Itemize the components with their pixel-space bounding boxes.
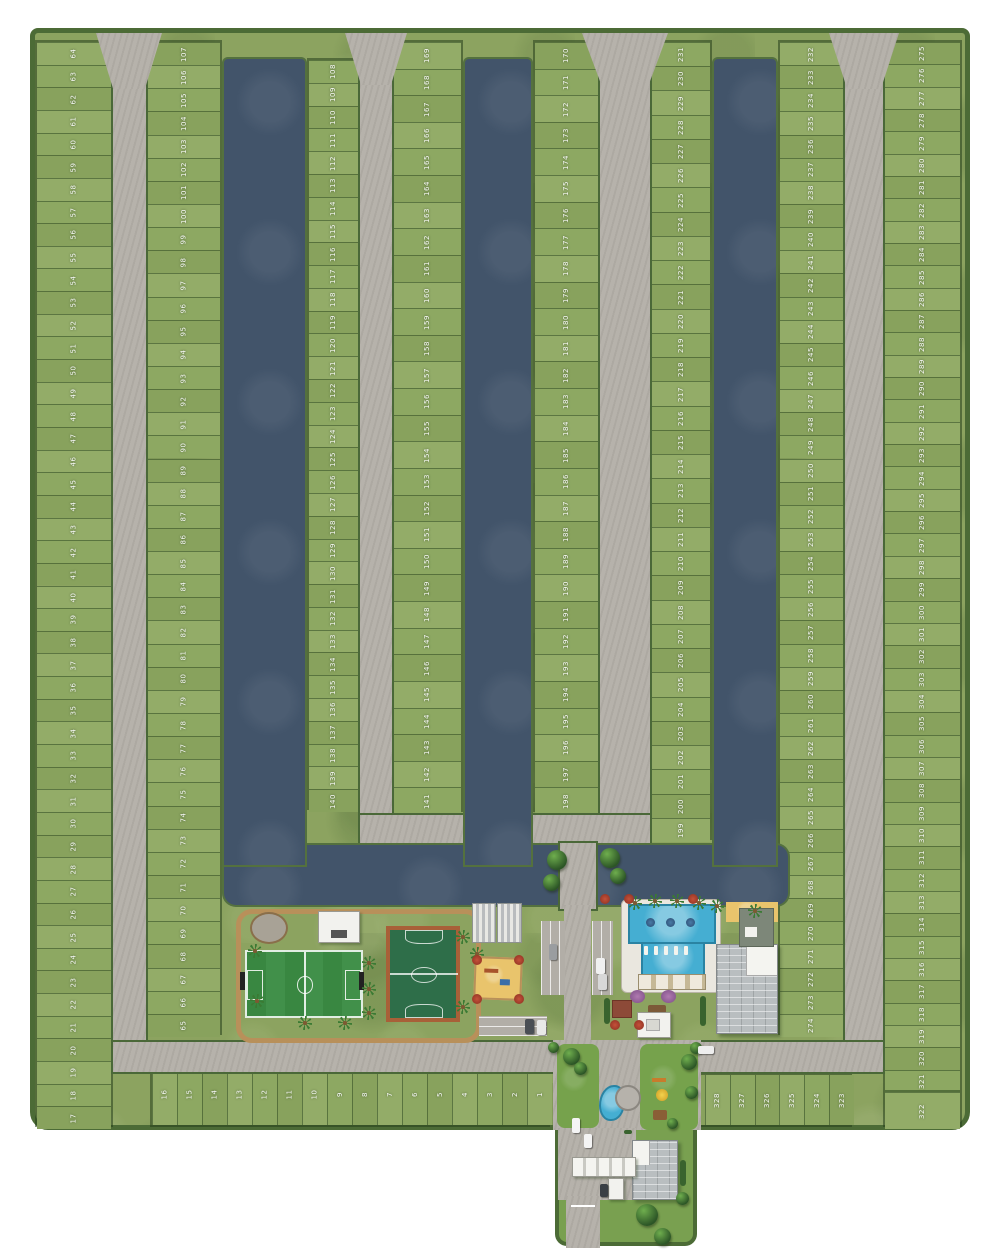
lot-291: 291 [885,399,960,421]
lot-251: 251 [780,482,843,505]
lot-273: 273 [780,991,843,1014]
pool-umbrella [666,918,675,927]
lot-44: 44 [37,495,111,518]
lot-29: 29 [37,835,111,858]
lot-237: 237 [780,158,843,181]
lot-180: 180 [535,308,598,335]
lot-135: 135 [309,675,358,698]
playground-bed [653,1110,667,1120]
tree [685,1086,698,1099]
lot-13: 13 [227,1064,252,1125]
lot-281: 281 [885,176,960,198]
canal-3 [712,57,778,867]
lot-117: 117 [309,265,358,288]
lot-125: 125 [309,447,358,470]
canal1-east-column: 1081091101111121131141151161171181191201… [307,58,360,810]
hedge [624,1130,632,1134]
flower-pot [600,894,610,904]
lot-80: 80 [148,667,220,690]
cabanas [638,974,706,990]
lot-61: 61 [37,110,111,133]
lot-88: 88 [148,482,220,505]
lot-213: 213 [652,478,710,502]
lot-69: 69 [148,921,220,944]
lot-173: 173 [535,122,598,149]
lot-276: 276 [885,64,960,86]
lot-101: 101 [148,181,220,204]
lot-258: 258 [780,644,843,667]
lot-26: 26 [37,903,111,926]
lot-139: 139 [309,766,358,789]
lot-314: 314 [885,913,960,935]
lot-127: 127 [309,493,358,516]
flower-pot [514,955,524,965]
lot-308: 308 [885,779,960,801]
lot-283: 283 [885,221,960,243]
lot-95: 95 [148,320,220,343]
flower-pot [472,955,482,965]
palm-tree [362,956,376,970]
lot-146: 146 [394,654,461,681]
lot-10: 10 [302,1064,327,1125]
lot-38: 38 [37,631,111,654]
lot-227: 227 [652,139,710,163]
palm-tree [670,894,684,908]
car [698,1046,714,1054]
lot-178: 178 [535,255,598,282]
lot-259: 259 [780,667,843,690]
lot-166: 166 [394,122,461,149]
lot-153: 153 [394,468,461,495]
lot-60: 60 [37,133,111,156]
palm-tree [456,1000,470,1014]
lot-124: 124 [309,425,358,448]
lot-230: 230 [652,66,710,90]
lot-238: 238 [780,181,843,204]
palm-tree [250,994,264,1008]
lot-37: 37 [37,653,111,676]
east-edge-column: 2752762772782792802812822832842852862872… [883,40,962,1090]
kiosk-detail [331,930,347,938]
lot-16: 16 [152,1064,177,1125]
lot-245: 245 [780,343,843,366]
lot-5: 5 [427,1064,452,1125]
pool-umbrella [686,918,695,927]
lot-177: 177 [535,228,598,255]
lot-269: 269 [780,898,843,921]
amenity-drive [564,905,591,1045]
perimeter-road-west [113,36,146,1065]
lot-209: 209 [652,575,710,599]
sun-lounger [644,946,648,955]
lot-68: 68 [148,944,220,967]
lot-49: 49 [37,382,111,405]
south-road [113,1042,883,1072]
lot-149: 149 [394,574,461,601]
lot-187: 187 [535,495,598,522]
lot-277: 277 [885,87,960,109]
lot-133: 133 [309,630,358,653]
lot-208: 208 [652,600,710,624]
lot-164: 164 [394,175,461,202]
lot-122: 122 [309,379,358,402]
lot-312: 312 [885,869,960,891]
lot-157: 157 [394,361,461,388]
flower-pot [634,1020,644,1030]
car [537,1020,546,1035]
lot-126: 126 [309,470,358,493]
lot-25: 25 [37,925,111,948]
lot-254: 254 [780,551,843,574]
lot-298: 298 [885,556,960,578]
lot-77: 77 [148,736,220,759]
car [598,974,607,990]
lot-175: 175 [535,175,598,202]
lot-82: 82 [148,620,220,643]
lot-199: 199 [652,818,710,842]
lot-257: 257 [780,620,843,643]
lot-89: 89 [148,459,220,482]
lot-318: 318 [885,1003,960,1025]
lot-130: 130 [309,561,358,584]
canal-2 [463,57,533,867]
lot-249: 249 [780,435,843,458]
lot-233: 233 [780,65,843,88]
lot-35: 35 [37,699,111,722]
lot-2: 2 [502,1064,527,1125]
lot-121: 121 [309,356,358,379]
lot-196: 196 [535,734,598,761]
canal2-west-column: 1691681671661651641631621611601591581571… [392,40,463,812]
lot-116: 116 [309,242,358,265]
lot-315: 315 [885,936,960,958]
tree [548,1042,559,1053]
lot-235: 235 [780,111,843,134]
lot-33: 33 [37,744,111,767]
lot-30: 30 [37,812,111,835]
lot-191: 191 [535,601,598,628]
lot-53: 53 [37,291,111,314]
lot-75: 75 [148,782,220,805]
lot-192: 192 [535,628,598,655]
lot-198: 198 [535,787,598,814]
lot-109: 109 [309,83,358,106]
palm-tree [362,1006,376,1020]
lot-296: 296 [885,511,960,533]
lot-145: 145 [394,681,461,708]
lot-222: 222 [652,260,710,284]
lot-9: 9 [327,1064,352,1125]
lot-326: 326 [755,1075,780,1125]
lot-140: 140 [309,789,358,812]
lot-324: 324 [804,1075,829,1125]
lot-203: 203 [652,721,710,745]
tree [543,874,560,891]
lot-74: 74 [148,806,220,829]
lot-266: 266 [780,829,843,852]
lot-110: 110 [309,106,358,129]
lot-274: 274 [780,1014,843,1037]
lot-217: 217 [652,381,710,405]
lot-115: 115 [309,220,358,243]
gatehouse-building [632,1140,678,1200]
canal3-west-column: 2312302292282272262252242232222212202192… [650,40,712,840]
lot-54: 54 [37,268,111,291]
greenhouse-structure [472,903,496,943]
lot-143: 143 [394,734,461,761]
lot-113: 113 [309,174,358,197]
lot-240: 240 [780,227,843,250]
lot-246: 246 [780,366,843,389]
tree [574,1062,587,1075]
palm-tree [648,894,662,908]
lot-241: 241 [780,250,843,273]
lot-306: 306 [885,735,960,757]
lot-309: 309 [885,802,960,824]
lot-19: 19 [37,1061,111,1084]
lot-320: 320 [885,1047,960,1069]
lot-137: 137 [309,721,358,744]
lot-81: 81 [148,644,220,667]
lot-52: 52 [37,314,111,337]
lot-151: 151 [394,521,461,548]
lot-41: 41 [37,563,111,586]
lot-46: 46 [37,450,111,473]
lot-7: 7 [377,1064,402,1125]
car [596,958,605,974]
lot-260: 260 [780,690,843,713]
lot-104: 104 [148,111,220,134]
lot-279: 279 [885,131,960,153]
tree [654,1228,671,1245]
lot-322: 322 [885,1092,960,1129]
lot-59: 59 [37,155,111,178]
lot-219: 219 [652,333,710,357]
lot-195: 195 [535,708,598,735]
lot-224: 224 [652,212,710,236]
lot-242: 242 [780,273,843,296]
lot-128: 128 [309,516,358,539]
lot-261: 261 [780,713,843,736]
lot-22: 22 [37,993,111,1016]
sun-lounger [674,946,678,955]
lot-134: 134 [309,652,358,675]
hedge [680,1160,686,1186]
lot-99: 99 [148,227,220,250]
lot-284: 284 [885,243,960,265]
lot-285: 285 [885,265,960,287]
lot-310: 310 [885,824,960,846]
lot-317: 317 [885,980,960,1002]
lot-154: 154 [394,441,461,468]
lot-300: 300 [885,601,960,623]
roundabout [615,1085,641,1111]
lot-205: 205 [652,672,710,696]
tree [636,1204,658,1226]
lot-216: 216 [652,406,710,430]
lot-189: 189 [535,548,598,575]
lot-6: 6 [402,1064,427,1125]
lot-56: 56 [37,223,111,246]
lot-4: 4 [452,1064,477,1125]
palm-tree [456,930,470,944]
lot-302: 302 [885,645,960,667]
lot-211: 211 [652,527,710,551]
canal2-east-column: 1701711721731741751761771781791801811821… [533,40,600,812]
lot-243: 243 [780,297,843,320]
lot-228: 228 [652,115,710,139]
play-structure [484,969,498,973]
lot-174: 174 [535,148,598,175]
lot-160: 160 [394,282,461,309]
lot-206: 206 [652,648,710,672]
lot-292: 292 [885,422,960,444]
lot-218: 218 [652,357,710,381]
lot-150: 150 [394,548,461,575]
lot-252: 252 [780,505,843,528]
lot-21: 21 [37,1016,111,1039]
clubhouse-white-wing [746,945,777,976]
multisport-court [386,926,460,1022]
lot-94: 94 [148,343,220,366]
entry-canopy [572,1157,636,1177]
lot-57: 57 [37,201,111,224]
lot-220: 220 [652,309,710,333]
lot-17: 17 [37,1106,111,1129]
sun-lounger [664,946,668,955]
lot-102: 102 [148,158,220,181]
lot-144: 144 [394,708,461,735]
lot-201: 201 [652,769,710,793]
lot-183: 183 [535,388,598,415]
lot-225: 225 [652,187,710,211]
lot-86: 86 [148,528,220,551]
flower-garden [661,990,676,1003]
lot-161: 161 [394,255,461,282]
lot-282: 282 [885,198,960,220]
lot-123: 123 [309,402,358,425]
tree [681,1054,697,1070]
lot-67: 67 [148,968,220,991]
soccer-field [245,950,363,1018]
lot-271: 271 [780,944,843,967]
lot-207: 207 [652,624,710,648]
lot-40: 40 [37,586,111,609]
lot-184: 184 [535,415,598,442]
lot-294: 294 [885,466,960,488]
lot-34: 34 [37,721,111,744]
lot-299: 299 [885,578,960,600]
lot-223: 223 [652,236,710,260]
lot-172: 172 [535,95,598,122]
flower-pot [472,994,482,1004]
lot-98: 98 [148,250,220,273]
lot-214: 214 [652,454,710,478]
lot-70: 70 [148,898,220,921]
lot-76: 76 [148,759,220,782]
lot-194: 194 [535,681,598,708]
lot-92: 92 [148,389,220,412]
lot-167: 167 [394,95,461,122]
lot-275: 275 [885,42,960,64]
play-structure [500,979,510,985]
lot-286: 286 [885,288,960,310]
lot-55: 55 [37,246,111,269]
lot-226: 226 [652,163,710,187]
lot-169: 169 [394,42,461,69]
lot-278: 278 [885,109,960,131]
lot-197: 197 [535,761,598,788]
lot-185: 185 [535,441,598,468]
lot-147: 147 [394,628,461,655]
lot-43: 43 [37,518,111,541]
internal-road-2 [360,36,392,843]
lot-171: 171 [535,69,598,96]
lot-165: 165 [394,148,461,175]
lot-179: 179 [535,282,598,309]
main-avenue-north [600,36,650,817]
palm-tree [362,982,376,996]
west-edge-column: 6463626160595857565554535251504948474645… [35,40,113,1127]
lot-66: 66 [148,991,220,1014]
hedge [604,998,610,1024]
lot-304: 304 [885,690,960,712]
swimming-pool-lap [641,942,705,978]
entrance-road-stub [566,1196,600,1248]
lot-247: 247 [780,389,843,412]
lot-305: 305 [885,712,960,734]
tree [610,868,626,884]
lot-72: 72 [148,852,220,875]
lot-176: 176 [535,202,598,229]
canal-bridge [560,843,596,909]
lot-313: 313 [885,891,960,913]
lot-316: 316 [885,958,960,980]
lot-229: 229 [652,90,710,114]
lot-255: 255 [780,574,843,597]
lot-158: 158 [394,335,461,362]
lot-270: 270 [780,921,843,944]
lot-204: 204 [652,697,710,721]
lot-91: 91 [148,412,220,435]
lot-14: 14 [202,1064,227,1125]
kids-play-area [612,1000,632,1018]
lot-32: 32 [37,767,111,790]
lot-97: 97 [148,273,220,296]
lot-24: 24 [37,948,111,971]
corner-lot: 322 [883,1090,962,1127]
site-plan-canvas: 6463626160595857565554535251504948474645… [0,0,1000,1250]
lot-248: 248 [780,412,843,435]
playground-dome [656,1089,668,1101]
greenhouse-structure [497,903,522,943]
lot-236: 236 [780,135,843,158]
palm-tree [298,1016,312,1030]
lot-256: 256 [780,597,843,620]
lot-321: 321 [885,1070,960,1092]
lot-200: 200 [652,794,710,818]
lot-295: 295 [885,489,960,511]
lot-79: 79 [148,690,220,713]
flower-pot [610,1020,620,1030]
lot-111: 111 [309,128,358,151]
lot-71: 71 [148,875,220,898]
lot-100: 100 [148,204,220,227]
palm-tree [338,1016,352,1030]
lot-289: 289 [885,355,960,377]
lot-129: 129 [309,539,358,562]
lot-39: 39 [37,608,111,631]
